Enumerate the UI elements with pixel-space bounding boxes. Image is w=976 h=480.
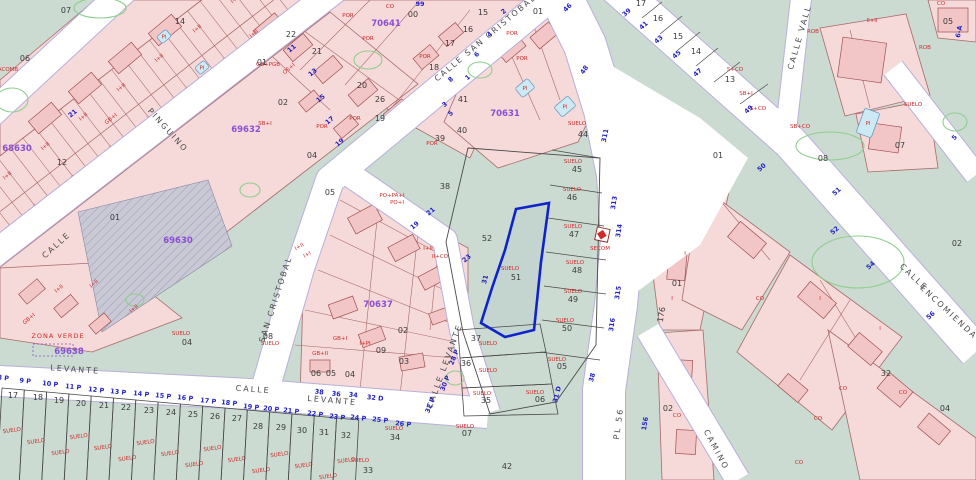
parcel-number: 33 bbox=[363, 466, 373, 475]
address-number: 13 P bbox=[110, 387, 127, 397]
parcel-number: 08 bbox=[263, 332, 273, 341]
parcel-number: 17 bbox=[636, 0, 646, 8]
parcel-number: 18 bbox=[33, 393, 43, 402]
parcel-number: 37 bbox=[471, 334, 481, 343]
construction-code: SB+CO bbox=[790, 124, 811, 130]
parcel-number: 18 bbox=[429, 63, 439, 72]
suelo-label: SUELO bbox=[479, 341, 498, 347]
construction-code: ROB bbox=[807, 29, 819, 35]
parcel-number: 15 bbox=[673, 32, 683, 41]
parcel-number: 05 bbox=[325, 188, 335, 197]
pool-label: PI bbox=[200, 66, 205, 72]
parcel-number: 19 bbox=[375, 114, 385, 123]
parcel-number: 42 bbox=[502, 462, 512, 471]
parcel-number: 25 bbox=[188, 410, 198, 419]
address-number: 99 bbox=[415, 0, 425, 8]
construction-code: S+CO bbox=[727, 67, 744, 73]
parcel-number: 27 bbox=[232, 414, 242, 423]
parcel-number: 20 bbox=[357, 81, 367, 90]
construction-code: CO bbox=[756, 296, 765, 302]
pool-label: PI bbox=[523, 86, 528, 92]
building bbox=[675, 429, 696, 454]
construction-code: CO bbox=[839, 386, 848, 392]
address-number: 15 P bbox=[155, 391, 172, 401]
construction-code: ROB bbox=[919, 45, 931, 51]
address-number: 8 P bbox=[0, 373, 10, 382]
construction-code: POR bbox=[506, 31, 518, 37]
transformer-label: SECOM bbox=[590, 246, 610, 252]
parcel-number: 05 bbox=[557, 362, 567, 371]
suelo-label: SUELO bbox=[568, 121, 587, 127]
parcel-number: 16 bbox=[463, 25, 473, 34]
parcel-number: 50 bbox=[562, 324, 572, 333]
parcel-number: 06 bbox=[20, 54, 30, 63]
block-number: 70637 bbox=[363, 300, 393, 310]
address-number: 18 P bbox=[221, 398, 238, 408]
parcel-number: 02 bbox=[278, 98, 288, 107]
parcel-number: 07 bbox=[895, 141, 905, 150]
parcel-number: 04 bbox=[345, 370, 355, 379]
address-number: 19 P bbox=[243, 402, 260, 412]
parcel-number: 04 bbox=[182, 338, 192, 347]
parcel-number: 34 bbox=[390, 433, 400, 442]
address-number: 36 bbox=[331, 390, 341, 399]
parcel-number: 31 bbox=[319, 428, 329, 437]
construction-code: POR bbox=[349, 116, 361, 122]
parcel-number: 16 bbox=[653, 14, 663, 23]
parcel-number: 51 bbox=[511, 273, 521, 282]
pool-label: PI bbox=[866, 121, 871, 127]
parcel-number: 06 bbox=[311, 369, 321, 378]
address-number: 9 P bbox=[19, 376, 32, 385]
parcel-number: 01 bbox=[713, 151, 723, 160]
pool-label: PI bbox=[162, 35, 167, 41]
building bbox=[837, 37, 886, 83]
parcel-number: 22 bbox=[121, 403, 131, 412]
address-number: 20 P bbox=[263, 404, 280, 414]
construction-code: PO+PA+I bbox=[379, 193, 405, 199]
construction-code: CO bbox=[673, 413, 682, 419]
parcel-number: 04 bbox=[940, 404, 950, 413]
parcel-number: 24 bbox=[166, 408, 176, 417]
construction-code: II+II bbox=[866, 18, 877, 24]
construction-code: CO bbox=[937, 1, 946, 7]
parcel-number: 32 bbox=[341, 431, 351, 440]
address-number: 21 P bbox=[283, 406, 300, 416]
construction-code: CO bbox=[899, 390, 908, 396]
parcel-number: 41 bbox=[458, 95, 468, 104]
parcel-number: 26 bbox=[210, 412, 220, 421]
cadastral-map: I+III+III+III+III+III+III+III+III+III+II… bbox=[0, 0, 976, 480]
parcel-number: 46 bbox=[567, 193, 577, 202]
construction-code: POR bbox=[362, 36, 374, 42]
suelo-label: SUELO bbox=[172, 331, 191, 337]
parcel-number: 06 bbox=[535, 395, 545, 404]
construction-code: POR bbox=[342, 13, 354, 19]
parcel-number: 02 bbox=[663, 404, 673, 413]
suelo-label: SUELO bbox=[351, 458, 370, 464]
parcel-number: 00 bbox=[408, 10, 418, 19]
block-number: 68630 bbox=[2, 144, 32, 154]
parcel-number: 17 bbox=[445, 39, 455, 48]
construction-code: CO bbox=[814, 416, 823, 422]
zona-verde-label: ZONA VERDE bbox=[31, 332, 84, 340]
parcel-number: 02 bbox=[952, 239, 962, 248]
construction-code: ACOMB bbox=[0, 67, 18, 73]
parcel-number: 17 bbox=[8, 391, 18, 400]
parcel-number: 23 bbox=[144, 406, 154, 415]
construction-code: SB+I bbox=[739, 91, 753, 97]
address-number: 26 P bbox=[395, 419, 412, 429]
block-number: 69630 bbox=[163, 236, 193, 246]
construction-code: I+PI bbox=[359, 341, 371, 347]
construction-code: POR bbox=[419, 54, 431, 60]
address-number: 24 P bbox=[350, 413, 367, 423]
parcel-number: 05 bbox=[943, 17, 953, 26]
address-number: 38 bbox=[314, 388, 324, 397]
address-number: 12 P bbox=[88, 385, 105, 395]
block-number: 70631 bbox=[490, 109, 520, 119]
construction-code: POR bbox=[316, 124, 328, 130]
block-number: 69632 bbox=[231, 125, 261, 135]
parcel-number: 19 bbox=[54, 396, 64, 405]
parcel-number: 49 bbox=[568, 295, 578, 304]
construction-code: PO+I bbox=[390, 200, 404, 206]
parcel-number: 39 bbox=[435, 134, 445, 143]
parcel-number: 21 bbox=[99, 401, 109, 410]
address-number: 23 P bbox=[329, 412, 346, 422]
parcel-number: 28 bbox=[253, 422, 263, 431]
block-number: 70641 bbox=[371, 19, 401, 29]
parcel-number: 12 bbox=[57, 158, 67, 167]
construction-code: I+II bbox=[423, 246, 433, 252]
address-number: 14 P bbox=[133, 389, 150, 399]
parcel-number: 21 bbox=[312, 47, 322, 56]
address-number: 10 P bbox=[42, 379, 59, 389]
construction-code: POR bbox=[516, 56, 528, 62]
parcel-number: 20 bbox=[76, 399, 86, 408]
pool-label: PI bbox=[563, 105, 568, 111]
address-number: 34 bbox=[348, 391, 358, 400]
parcel-number: 09 bbox=[376, 346, 386, 355]
parcel-number: 22 bbox=[286, 30, 296, 39]
suelo-label: SUELO bbox=[261, 341, 280, 347]
address-number: 22 P bbox=[307, 409, 324, 419]
parcel-number: 15 bbox=[478, 8, 488, 17]
parcel-number: 01 bbox=[672, 279, 682, 288]
parcel-number: 14 bbox=[691, 47, 701, 56]
parcel-number: 07 bbox=[462, 429, 472, 438]
construction-code: GB+I bbox=[333, 336, 348, 342]
parcel-number: 45 bbox=[572, 165, 582, 174]
parcel-number: 13 bbox=[725, 75, 735, 84]
address-number: 17 P bbox=[200, 396, 217, 406]
address-number: 16 P bbox=[177, 393, 194, 403]
parcel-number: 26 bbox=[375, 95, 385, 104]
address-number: 11 P bbox=[65, 382, 82, 392]
parcel-number: 47 bbox=[569, 230, 579, 239]
parcel-number: 44 bbox=[578, 130, 588, 139]
parcel-number: 01 bbox=[110, 213, 120, 222]
parcel-number: 14 bbox=[175, 17, 185, 26]
parcel-number: 07 bbox=[61, 6, 71, 15]
parcel-number: 05 bbox=[326, 369, 336, 378]
parcel-number: 04 bbox=[307, 151, 317, 160]
address-number: 25 P bbox=[372, 415, 389, 425]
parcel-number: 32 bbox=[881, 369, 891, 378]
parcel-number: 52 bbox=[482, 234, 492, 243]
parcel-number: 36 bbox=[461, 359, 471, 368]
parcel-number: 02 bbox=[398, 326, 408, 335]
construction-code: CO bbox=[795, 460, 804, 466]
suelo-label: SUELO bbox=[479, 368, 498, 374]
map-canvas[interactable]: I+III+III+III+III+III+III+III+III+III+II… bbox=[0, 0, 976, 480]
parcel-number: 38 bbox=[440, 182, 450, 191]
parcel-number: 30 bbox=[297, 426, 307, 435]
suelo-label: SUELO bbox=[501, 266, 520, 272]
parcel-number: 35 bbox=[481, 396, 491, 405]
suelo-label: SUELO bbox=[904, 102, 923, 108]
parcel-number: 01 bbox=[257, 58, 267, 67]
parcel-number: 08 bbox=[818, 154, 828, 163]
parcel-number: 40 bbox=[457, 126, 467, 135]
block-number: 69638 bbox=[54, 347, 84, 357]
parcel-number: 03 bbox=[399, 357, 409, 366]
construction-code: GB+II bbox=[312, 351, 328, 357]
construction-code: II+CO bbox=[432, 254, 449, 260]
construction-code: CO bbox=[386, 4, 395, 10]
parcel-number: 48 bbox=[572, 266, 582, 275]
parcel-number: 01 bbox=[533, 7, 543, 16]
parcel-number: 29 bbox=[276, 423, 286, 432]
